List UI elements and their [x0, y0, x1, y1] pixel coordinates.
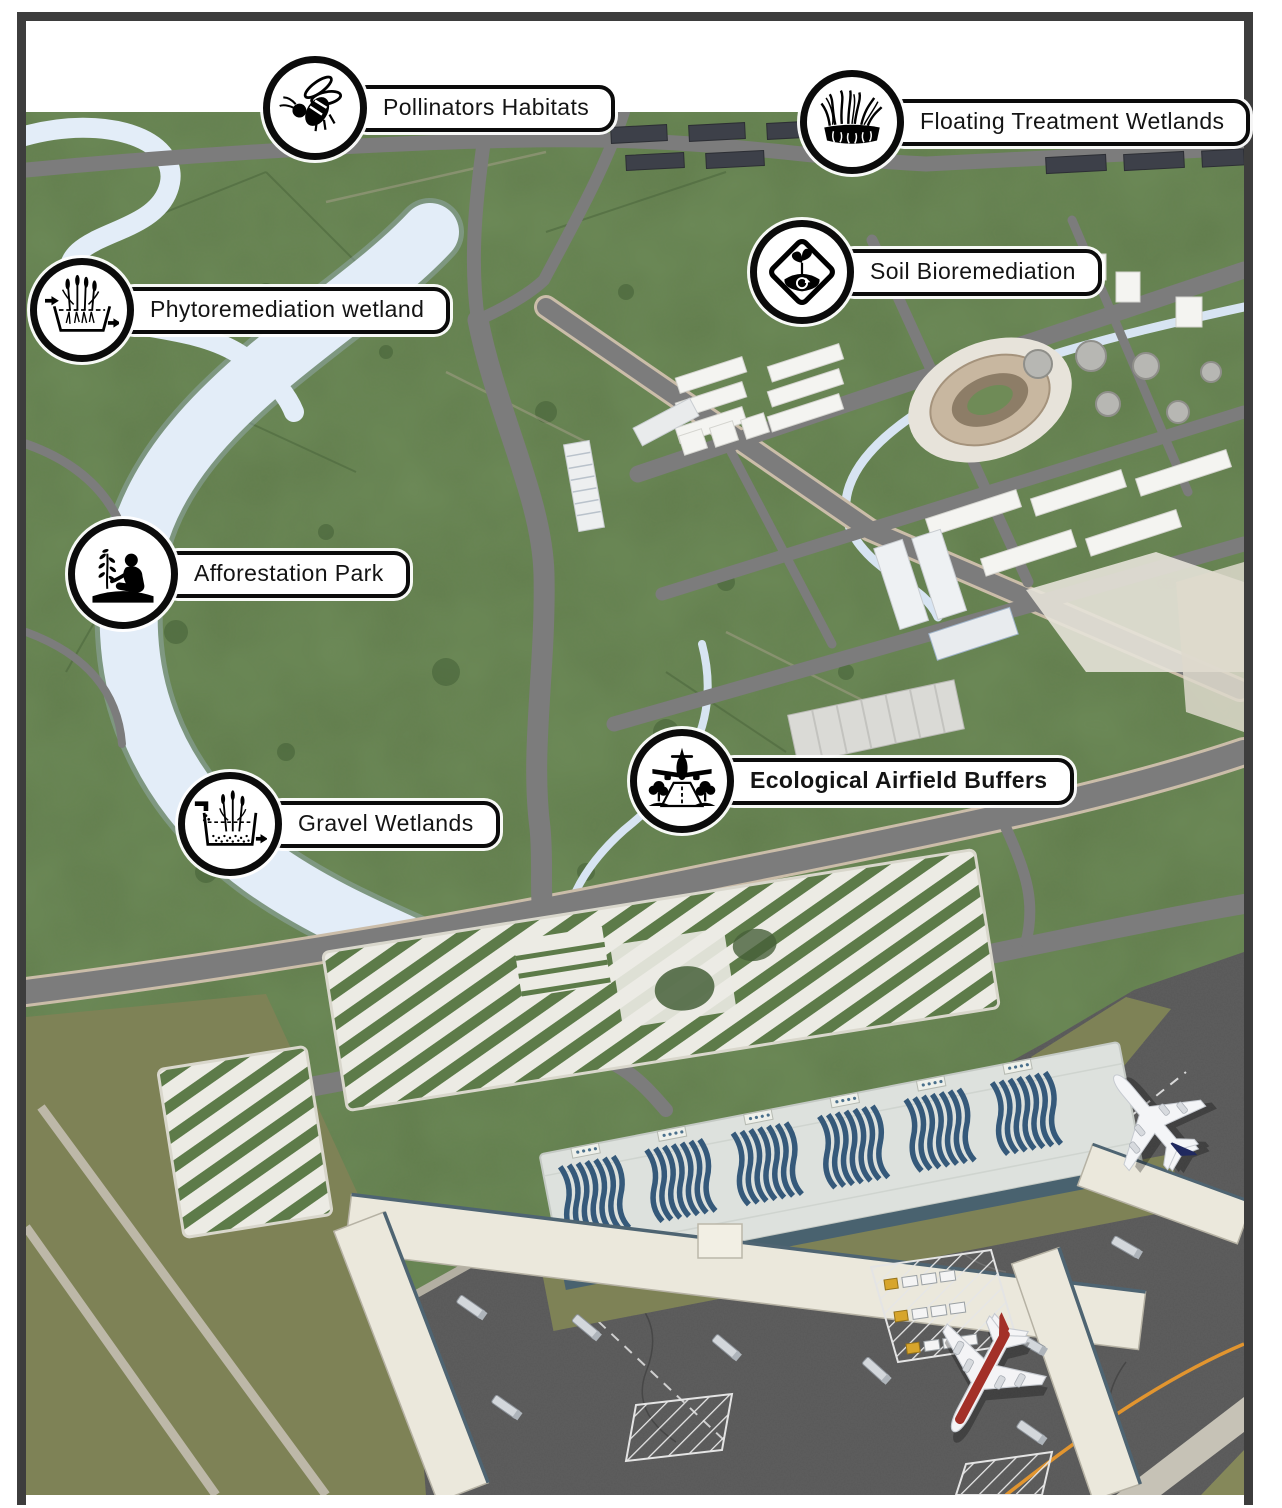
label-pill: Ecological Airfield Buffers [718, 758, 1074, 805]
callout-ecological-airfield-buffers: Ecological Airfield Buffers [630, 729, 1074, 833]
label-pill: Soil Bioremediation [838, 249, 1102, 296]
parking-deck-small [158, 1046, 333, 1237]
airfield-buffer-icon [630, 729, 734, 833]
label-pill: Pollinators Habitats [351, 85, 615, 132]
bee-icon [263, 56, 367, 160]
callout-pollinators-habitats: Pollinators Habitats [263, 56, 615, 160]
border-frame-right [1244, 12, 1253, 1505]
floating-wetland-icon [800, 70, 904, 174]
tree-planting-icon [68, 519, 178, 629]
gravel-wetland-icon [178, 772, 282, 876]
callout-soil-bioremediation: Soil Bioremediation [750, 220, 1102, 324]
phytoremediation-icon [30, 258, 134, 362]
soil-bioremediation-icon [750, 220, 854, 324]
border-frame-top [17, 12, 1253, 21]
callout-afforestation-park: Afforestation Park [68, 519, 410, 629]
border-frame-left [17, 12, 26, 1505]
label-pill: Gravel Wetlands [266, 801, 500, 848]
label-pill: Phytoremediation wetland [118, 287, 450, 334]
callout-floating-treatment-wetlands: Floating Treatment Wetlands [800, 70, 1250, 174]
label-pill: Afforestation Park [162, 551, 410, 598]
callout-phytoremediation-wetland: Phytoremediation wetland [30, 258, 450, 362]
callout-gravel-wetlands: Gravel Wetlands [178, 772, 500, 876]
label-pill: Floating Treatment Wetlands [888, 99, 1250, 146]
